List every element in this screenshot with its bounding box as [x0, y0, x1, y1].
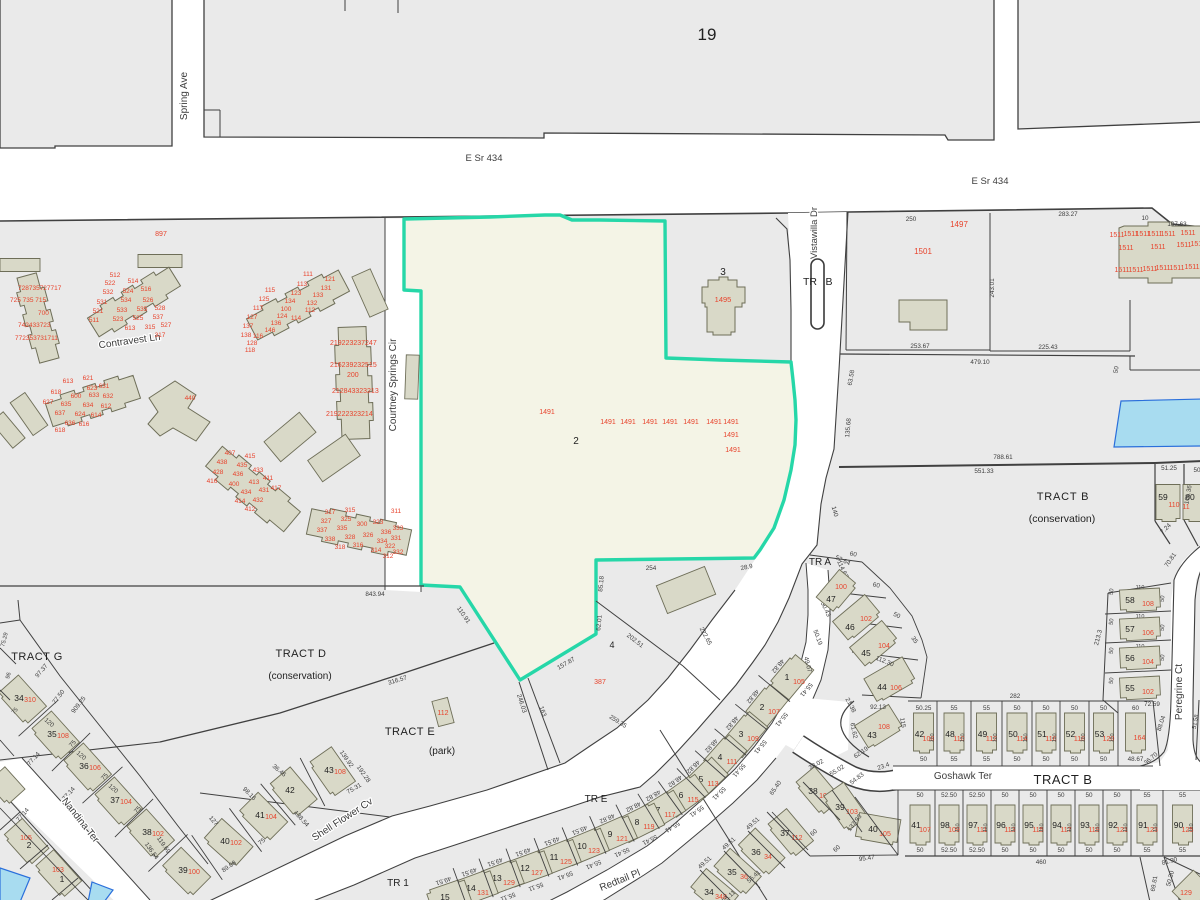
svg-text:58: 58: [1125, 595, 1135, 605]
svg-text:317: 317: [155, 332, 166, 339]
svg-text:50: 50: [1057, 792, 1065, 799]
svg-text:45: 45: [861, 648, 871, 658]
svg-text:438: 438: [217, 459, 228, 466]
svg-text:50: 50: [1100, 756, 1108, 763]
svg-text:55: 55: [1143, 847, 1151, 854]
svg-text:131: 131: [477, 890, 489, 897]
svg-text:2: 2: [760, 702, 765, 712]
svg-text:50: 50: [1100, 705, 1108, 712]
svg-text:62.01: 62.01: [595, 614, 603, 631]
svg-text:Courtney Springs Cir: Courtney Springs Cir: [388, 338, 399, 431]
svg-text:110: 110: [992, 733, 999, 742]
svg-text:114: 114: [291, 315, 302, 322]
svg-text:124: 124: [277, 313, 288, 320]
svg-text:633: 633: [89, 392, 100, 399]
svg-text:527: 527: [161, 322, 172, 329]
svg-text:117: 117: [664, 812, 675, 819]
svg-text:537: 537: [153, 314, 164, 321]
svg-text:533: 533: [117, 307, 128, 314]
svg-text:85.18: 85.18: [597, 575, 605, 592]
svg-text:433: 433: [253, 467, 264, 474]
svg-text:621: 621: [83, 375, 94, 382]
svg-text:52.50: 52.50: [969, 847, 985, 854]
svg-text:318: 318: [335, 544, 346, 551]
svg-text:105: 105: [20, 835, 32, 842]
svg-text:146: 146: [265, 327, 276, 334]
svg-text:843.94: 843.94: [365, 591, 385, 598]
svg-text:B: B: [825, 276, 832, 288]
svg-text:742433723: 742433723: [18, 322, 51, 329]
svg-text:110: 110: [1023, 733, 1030, 742]
svg-text:50: 50: [1057, 847, 1065, 854]
svg-text:52.50: 52.50: [941, 792, 957, 799]
svg-text:415: 415: [245, 453, 256, 460]
svg-text:316: 316: [353, 542, 364, 549]
svg-text:51.25: 51.25: [1161, 465, 1177, 472]
svg-text:110: 110: [1052, 733, 1059, 742]
svg-text:Spring Ave: Spring Ave: [179, 71, 190, 120]
svg-text:55: 55: [983, 705, 991, 712]
svg-text:1511: 1511: [1128, 267, 1143, 274]
svg-text:1491: 1491: [642, 419, 658, 426]
svg-text:315: 315: [345, 507, 356, 514]
svg-text:434: 434: [241, 489, 252, 496]
svg-text:700: 700: [38, 310, 49, 317]
svg-text:110: 110: [1080, 733, 1087, 742]
svg-text:50: 50: [1071, 756, 1079, 763]
svg-text:412: 412: [245, 506, 256, 513]
svg-text:108: 108: [1142, 601, 1154, 608]
svg-text:41: 41: [255, 810, 265, 820]
svg-text:326: 326: [363, 532, 374, 539]
svg-text:43: 43: [867, 730, 877, 740]
svg-text:117: 117: [253, 305, 264, 312]
svg-text:332: 332: [393, 549, 404, 556]
svg-text:39: 39: [178, 865, 188, 875]
svg-text:133: 133: [313, 292, 324, 299]
svg-text:43: 43: [324, 765, 334, 775]
svg-text:1511: 1511: [1180, 230, 1195, 237]
svg-text:3: 3: [739, 729, 744, 739]
svg-text:44: 44: [877, 682, 887, 692]
svg-text:516: 516: [141, 286, 152, 293]
svg-text:311: 311: [391, 508, 402, 515]
svg-text:637: 637: [55, 410, 66, 417]
svg-text:112: 112: [305, 307, 316, 314]
svg-text:E Sr 434: E Sr 434: [972, 176, 1009, 187]
svg-text:1491: 1491: [539, 409, 555, 416]
svg-text:107: 107: [919, 827, 931, 834]
svg-text:55: 55: [950, 705, 958, 712]
svg-text:50: 50: [1001, 792, 1009, 799]
svg-text:10: 10: [1141, 215, 1149, 222]
svg-text:121: 121: [616, 836, 628, 843]
svg-text:4: 4: [718, 752, 723, 762]
svg-text:125: 125: [560, 859, 572, 866]
svg-text:TRACT G: TRACT G: [11, 651, 63, 663]
svg-text:100: 100: [188, 869, 200, 876]
svg-text:1495: 1495: [715, 295, 732, 304]
svg-text:632: 632: [103, 393, 114, 400]
svg-text:48.67: 48.67: [1128, 756, 1144, 763]
svg-text:129: 129: [503, 880, 515, 887]
svg-text:129: 129: [1180, 890, 1192, 897]
svg-text:118: 118: [245, 347, 256, 354]
svg-text:50: 50: [1001, 847, 1009, 854]
svg-text:50: 50: [1085, 792, 1093, 799]
svg-text:E Sr 434: E Sr 434: [466, 153, 503, 164]
svg-text:432: 432: [253, 497, 264, 504]
svg-text:92.13: 92.13: [870, 704, 886, 711]
svg-text:323: 323: [373, 519, 384, 526]
svg-text:333: 333: [393, 525, 404, 532]
svg-text:631: 631: [99, 383, 110, 390]
svg-text:106: 106: [89, 765, 101, 772]
svg-text:119: 119: [643, 824, 654, 831]
svg-text:1: 1: [785, 672, 790, 682]
svg-text:110: 110: [983, 823, 990, 832]
svg-text:1491: 1491: [725, 447, 741, 454]
svg-text:1511: 1511: [1176, 242, 1191, 249]
svg-text:1491: 1491: [600, 419, 616, 426]
svg-text:50: 50: [916, 847, 924, 854]
svg-text:137: 137: [243, 323, 254, 330]
svg-text:110: 110: [960, 733, 967, 742]
svg-text:534: 534: [121, 297, 132, 304]
svg-text:200: 200: [347, 372, 359, 379]
svg-text:55: 55: [950, 756, 958, 763]
svg-text:131: 131: [321, 285, 332, 292]
svg-text:282: 282: [1010, 693, 1021, 700]
svg-text:1491: 1491: [662, 419, 678, 426]
svg-text:314: 314: [371, 547, 382, 554]
svg-text:110: 110: [929, 733, 936, 742]
svg-text:414: 414: [235, 498, 246, 505]
svg-text:104: 104: [1142, 659, 1154, 666]
svg-text:634: 634: [83, 402, 94, 409]
svg-text:(conservation): (conservation): [1029, 513, 1096, 525]
svg-text:TR: TR: [803, 276, 817, 288]
svg-text:1511: 1511: [1118, 245, 1133, 252]
svg-text:728735727717: 728735727717: [18, 285, 62, 292]
svg-text:TRACT B: TRACT B: [1037, 491, 1089, 503]
svg-text:428: 428: [213, 469, 224, 476]
svg-text:725 735 715: 725 735 715: [10, 297, 47, 304]
svg-text:216239232515: 216239232515: [330, 362, 377, 369]
svg-text:325: 325: [341, 516, 352, 523]
svg-text:Vistawilla Dr: Vistawilla Dr: [809, 207, 820, 259]
svg-text:635: 635: [61, 401, 72, 408]
svg-text:127: 127: [247, 314, 258, 321]
svg-text:104: 104: [120, 799, 132, 806]
svg-text:535: 535: [137, 306, 148, 313]
svg-text:335: 335: [337, 525, 348, 532]
svg-text:50: 50: [1109, 647, 1116, 654]
svg-text:50: 50: [1113, 792, 1121, 799]
svg-text:TRACT D: TRACT D: [276, 648, 327, 660]
svg-text:212843323213: 212843323213: [332, 388, 379, 395]
svg-text:1511: 1511: [1150, 244, 1165, 251]
svg-text:460: 460: [1036, 859, 1047, 866]
svg-text:50: 50: [1029, 847, 1037, 854]
svg-text:106: 106: [1142, 630, 1154, 637]
svg-text:115: 115: [265, 287, 276, 294]
svg-text:110: 110: [1039, 823, 1046, 832]
svg-text:435: 435: [237, 462, 248, 469]
svg-text:55: 55: [1179, 847, 1187, 854]
svg-text:2: 2: [573, 436, 579, 447]
svg-text:9: 9: [608, 829, 613, 839]
svg-text:772353731711: 772353731711: [15, 335, 58, 342]
svg-text:112: 112: [437, 710, 448, 717]
svg-text:104: 104: [878, 643, 890, 650]
svg-text:225.43: 225.43: [1038, 344, 1058, 351]
svg-text:60: 60: [1132, 705, 1140, 712]
svg-text:TR E: TR E: [585, 794, 608, 805]
svg-text:4: 4: [609, 640, 614, 650]
svg-text:1491: 1491: [723, 432, 739, 439]
svg-text:47: 47: [826, 594, 836, 604]
svg-text:102: 102: [230, 840, 242, 847]
svg-text:108: 108: [878, 724, 890, 731]
svg-text:1511: 1511: [1155, 265, 1170, 272]
svg-text:136: 136: [271, 320, 282, 327]
svg-text:34: 34: [704, 887, 714, 897]
svg-text:107: 107: [768, 709, 780, 716]
svg-text:100: 100: [281, 306, 292, 313]
svg-text:623: 623: [87, 385, 98, 392]
svg-text:38: 38: [808, 786, 818, 796]
svg-text:627: 627: [43, 399, 54, 406]
svg-text:338: 338: [325, 536, 336, 543]
svg-text:327: 327: [321, 518, 332, 525]
svg-text:614: 614: [91, 412, 102, 419]
svg-text:38: 38: [142, 827, 152, 837]
svg-text:110: 110: [1011, 823, 1018, 832]
svg-text:1511: 1511: [1160, 231, 1175, 238]
svg-text:52.50: 52.50: [969, 792, 985, 799]
svg-text:613: 613: [125, 325, 136, 332]
svg-text:104: 104: [265, 814, 277, 821]
svg-text:897: 897: [155, 231, 167, 238]
svg-text:107.63: 107.63: [1167, 221, 1187, 228]
svg-text:524: 524: [123, 288, 134, 295]
svg-text:551.33: 551.33: [974, 468, 994, 475]
svg-text:512: 512: [110, 272, 121, 279]
svg-text:431: 431: [259, 487, 270, 494]
svg-text:219223237247: 219223237247: [330, 340, 377, 347]
svg-text:35: 35: [727, 867, 737, 877]
svg-text:105: 105: [793, 679, 805, 686]
svg-text:111: 111: [303, 271, 313, 278]
svg-text:50: 50: [1013, 705, 1021, 712]
svg-text:600: 600: [71, 393, 82, 400]
svg-text:(park): (park): [429, 746, 455, 757]
svg-text:12: 12: [520, 863, 530, 873]
svg-text:616: 616: [79, 421, 90, 428]
svg-text:55: 55: [983, 756, 991, 763]
svg-text:37: 37: [110, 795, 120, 805]
svg-text:10: 10: [577, 841, 587, 851]
svg-text:1491: 1491: [723, 419, 739, 426]
svg-text:123: 123: [291, 290, 302, 297]
svg-text:108: 108: [334, 769, 346, 776]
svg-text:121: 121: [325, 276, 336, 283]
svg-text:312: 312: [383, 553, 394, 560]
svg-text:72.59: 72.59: [1144, 701, 1160, 708]
svg-text:34: 34: [14, 693, 24, 703]
svg-text:55: 55: [1143, 792, 1151, 799]
svg-text:50: 50: [920, 756, 928, 763]
svg-text:11: 11: [550, 852, 559, 862]
svg-text:1501: 1501: [914, 247, 932, 256]
svg-text:400: 400: [229, 481, 240, 488]
svg-text:46: 46: [845, 622, 855, 632]
svg-text:317: 317: [325, 509, 336, 516]
svg-text:35: 35: [47, 729, 57, 739]
svg-text:3: 3: [720, 267, 726, 278]
svg-text:1497: 1497: [950, 220, 968, 229]
svg-text:387: 387: [594, 679, 606, 686]
svg-text:337: 337: [317, 527, 328, 534]
svg-text:328: 328: [345, 534, 356, 541]
svg-text:6: 6: [679, 790, 684, 800]
svg-text:300: 300: [357, 521, 368, 528]
svg-text:123: 123: [588, 848, 600, 855]
svg-text:110: 110: [955, 823, 962, 832]
svg-text:102: 102: [860, 616, 872, 623]
svg-text:416: 416: [207, 478, 218, 485]
svg-text:50: 50: [1013, 756, 1021, 763]
svg-text:52.50: 52.50: [941, 847, 957, 854]
svg-text:111: 111: [727, 759, 738, 766]
svg-text:1511: 1511: [1114, 267, 1129, 274]
svg-text:479.10: 479.10: [970, 359, 990, 366]
svg-text:1511: 1511: [1109, 232, 1124, 239]
svg-text:134: 134: [285, 298, 296, 305]
svg-text:50: 50: [1193, 467, 1200, 474]
svg-text:523: 523: [113, 316, 124, 323]
svg-text:1511: 1511: [1184, 264, 1199, 271]
svg-text:50.25: 50.25: [916, 705, 932, 712]
svg-text:50: 50: [1029, 792, 1037, 799]
svg-text:310: 310: [24, 697, 36, 704]
svg-text:618: 618: [51, 389, 62, 396]
svg-text:TRACT B: TRACT B: [1034, 772, 1093, 787]
svg-text:1511: 1511: [1190, 241, 1200, 248]
svg-text:34: 34: [764, 854, 772, 861]
svg-text:109: 109: [747, 736, 759, 743]
svg-text:514: 514: [128, 278, 139, 285]
svg-text:440: 440: [185, 395, 196, 402]
svg-text:254: 254: [646, 565, 657, 572]
svg-text:526: 526: [143, 297, 154, 304]
svg-text:407: 407: [225, 450, 236, 457]
svg-text:1491: 1491: [620, 419, 636, 426]
svg-text:50: 50: [1042, 705, 1050, 712]
svg-text:50: 50: [1109, 618, 1116, 625]
svg-text:411: 411: [263, 475, 274, 482]
svg-text:40: 40: [220, 836, 230, 846]
svg-text:521: 521: [93, 308, 104, 315]
svg-text:125: 125: [259, 296, 270, 303]
svg-text:55: 55: [1125, 683, 1135, 693]
svg-text:436: 436: [233, 471, 244, 478]
svg-text:127: 127: [531, 870, 543, 877]
svg-text:TRACT E: TRACT E: [385, 726, 435, 738]
svg-text:250: 250: [906, 216, 917, 223]
svg-text:612: 612: [101, 403, 112, 410]
svg-text:1491: 1491: [683, 419, 699, 426]
svg-text:115: 115: [687, 797, 698, 804]
svg-text:110: 110: [1153, 823, 1160, 832]
svg-text:164: 164: [1134, 735, 1146, 742]
svg-text:36: 36: [79, 761, 89, 771]
svg-text:50: 50: [1109, 677, 1116, 684]
svg-text:1511: 1511: [1169, 265, 1184, 272]
svg-text:110: 110: [1109, 733, 1116, 742]
svg-text:Goshawk Ter: Goshawk Ter: [934, 771, 993, 782]
svg-text:100: 100: [835, 584, 847, 591]
svg-text:253.67: 253.67: [910, 343, 930, 350]
svg-text:50: 50: [1071, 705, 1079, 712]
svg-text:116: 116: [253, 333, 264, 340]
svg-text:50: 50: [1113, 847, 1121, 854]
svg-text:15: 15: [440, 892, 450, 900]
svg-text:50: 50: [1085, 847, 1093, 854]
svg-text:522: 522: [105, 280, 116, 287]
svg-text:788.61: 788.61: [993, 454, 1013, 461]
svg-text:528: 528: [155, 305, 166, 312]
svg-text:511: 511: [89, 317, 100, 324]
svg-text:636: 636: [65, 420, 76, 427]
svg-text:532: 532: [103, 289, 114, 296]
svg-text:19: 19: [698, 25, 717, 44]
svg-text:417: 417: [271, 485, 282, 492]
svg-text:36: 36: [751, 847, 761, 857]
svg-text:283.27: 283.27: [1058, 211, 1078, 218]
svg-text:132: 132: [307, 300, 318, 307]
svg-text:108: 108: [57, 733, 69, 740]
svg-text:39: 39: [835, 802, 845, 812]
svg-text:525: 525: [133, 315, 144, 322]
svg-text:624: 624: [75, 411, 86, 418]
svg-text:(conservation): (conservation): [268, 671, 331, 682]
svg-text:106: 106: [890, 685, 902, 692]
svg-text:110: 110: [1168, 502, 1179, 509]
svg-text:110: 110: [1123, 823, 1130, 832]
svg-text:57: 57: [1125, 624, 1135, 634]
svg-text:110: 110: [1067, 823, 1074, 832]
svg-text:113: 113: [297, 281, 308, 288]
svg-text:128: 128: [247, 340, 258, 347]
svg-text:110: 110: [1188, 823, 1195, 832]
svg-text:1491: 1491: [706, 419, 722, 426]
svg-text:315: 315: [145, 324, 156, 331]
svg-text:55: 55: [1179, 792, 1187, 799]
svg-text:138: 138: [241, 332, 252, 339]
svg-text:8: 8: [635, 817, 640, 827]
svg-text:42: 42: [285, 785, 295, 795]
svg-text:56: 56: [1125, 653, 1135, 663]
svg-text:50: 50: [916, 792, 924, 799]
svg-text:331: 331: [391, 535, 402, 542]
svg-text:TR A: TR A: [809, 557, 832, 568]
svg-text:243.01: 243.01: [989, 278, 996, 298]
svg-text:59: 59: [1158, 492, 1168, 502]
svg-text:613: 613: [63, 378, 74, 385]
svg-text:219222323214: 219222323214: [326, 411, 373, 418]
